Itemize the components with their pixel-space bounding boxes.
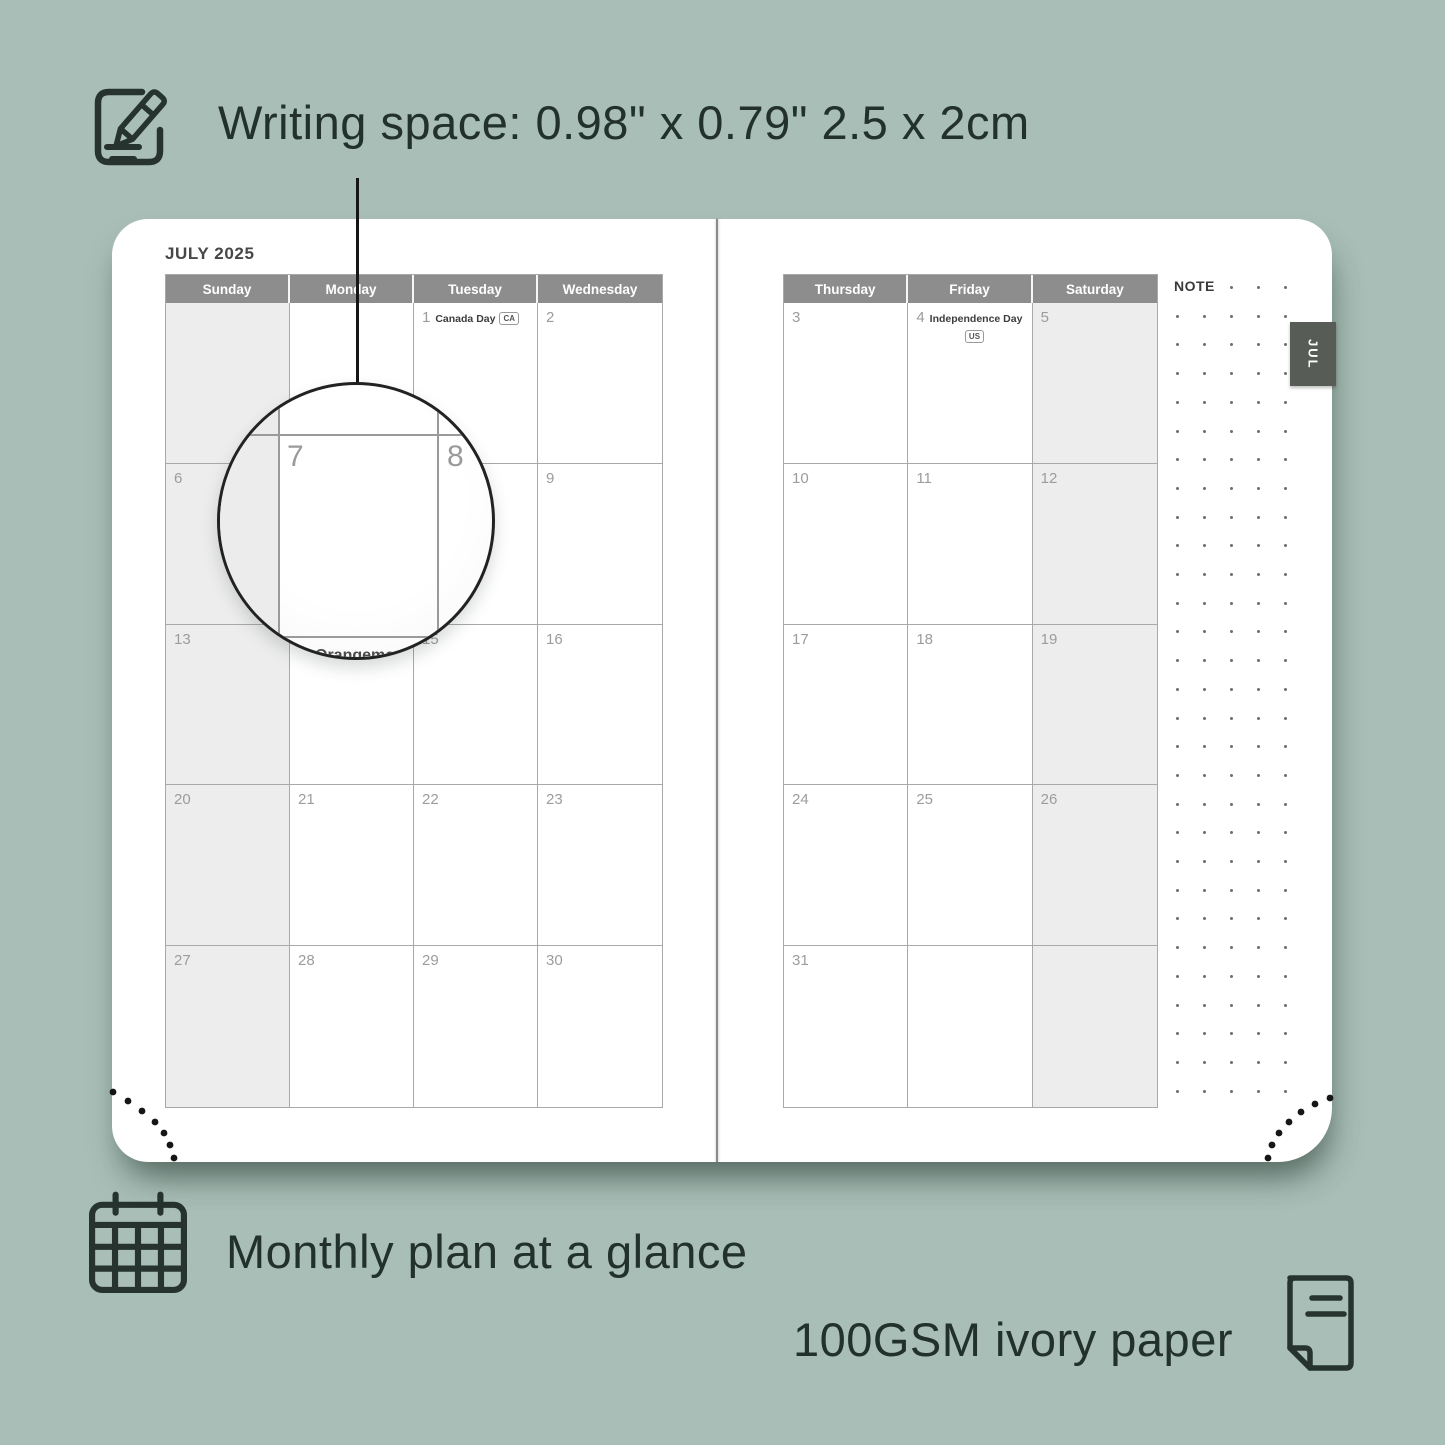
grid-dot: [1284, 803, 1287, 806]
date-number: 30: [546, 952, 563, 969]
grid-dot: [1203, 487, 1206, 490]
monthly-plan-caption: Monthly plan at a glance: [226, 1224, 748, 1279]
grid-dot: [1284, 889, 1287, 892]
grid-dot: [1284, 372, 1287, 375]
calendar-cell-24: 24: [784, 785, 908, 946]
calendar-cell-29: 29: [414, 946, 538, 1107]
grid-dot: [1176, 860, 1179, 863]
writing-space-caption: Writing space: 0.98" x 0.79" 2.5 x 2cm: [218, 95, 1030, 150]
grid-dot: [1284, 430, 1287, 433]
grid-dot: [1176, 401, 1179, 404]
grid-dot: [1176, 831, 1179, 834]
grid-dot: [1230, 315, 1233, 318]
calendar-cell-10: 10: [784, 464, 908, 625]
country-badge: CA: [499, 312, 519, 325]
grid-dot: [1257, 401, 1260, 404]
date-number: 6: [174, 470, 182, 487]
grid-dot: [1284, 860, 1287, 863]
grid-dot: [1257, 544, 1260, 547]
grid-dot: [1230, 372, 1233, 375]
grid-dot: [1257, 315, 1260, 318]
notebook-spine: [716, 219, 718, 1162]
grid-dot: [1284, 516, 1287, 519]
grid-dot: [1203, 917, 1206, 920]
calendar-cell-17: 17: [784, 625, 908, 786]
grid-dot: [1257, 372, 1260, 375]
date-number: 2: [546, 309, 554, 326]
grid-dot: [1257, 831, 1260, 834]
grid-dot: [1257, 286, 1260, 289]
date-number: 5: [1041, 309, 1049, 326]
calendar-cell-4: 4Independence DayUS: [908, 303, 1032, 464]
grid-dot: [1284, 286, 1287, 289]
grid-dot: [1176, 1004, 1179, 1007]
calendar-cell-23: 23: [538, 785, 662, 946]
paper-caption: 100GSM ivory paper: [793, 1312, 1233, 1367]
calendar-cell-empty: [1033, 946, 1157, 1107]
grid-dot: [1257, 630, 1260, 633]
grid-dot: [1284, 401, 1287, 404]
day-header-saturday: Saturday: [1033, 275, 1157, 303]
date-number: 13: [174, 631, 191, 648]
grid-dot: [1176, 315, 1179, 318]
grid-dot: [1284, 544, 1287, 547]
date-number: 11: [916, 470, 932, 487]
date-number: 21: [298, 791, 315, 808]
calendar-cell-2: 2: [538, 303, 662, 464]
grid-dot: [1284, 688, 1287, 691]
magnifier-circle: 7 8 Orangemen's: [217, 382, 495, 660]
grid-dot: [1230, 889, 1233, 892]
grid-dot: [1230, 516, 1233, 519]
magnified-gridline: [437, 385, 439, 657]
grid-dot: [1257, 688, 1260, 691]
grid-dot: [1176, 343, 1179, 346]
date-number: 17: [792, 631, 809, 648]
country-badge: US: [965, 330, 984, 343]
date-number: 16: [546, 631, 563, 648]
note-dot-grid: [1163, 276, 1333, 1108]
grid-dot: [1284, 659, 1287, 662]
magnified-gridline: [220, 636, 492, 638]
grid-dot: [1203, 860, 1206, 863]
grid-dot: [1230, 573, 1233, 576]
grid-dot: [1230, 831, 1233, 834]
date-number: 20: [174, 791, 191, 808]
grid-dot: [1284, 573, 1287, 576]
planner-product-image: { "colors": { "background": "#a8beb6", "…: [0, 0, 1445, 1445]
holiday-label: Independence Day: [930, 313, 1023, 325]
grid-dot: [1176, 1061, 1179, 1064]
grid-dot: [1203, 343, 1206, 346]
date-number: 27: [174, 952, 191, 969]
grid-dot: [1230, 659, 1233, 662]
calendar-cell-26: 26: [1033, 785, 1157, 946]
calendar-cell-28: 28: [290, 946, 414, 1107]
grid-dot: [1257, 1004, 1260, 1007]
calendar-cell-9: 9: [538, 464, 662, 625]
grid-dot: [1257, 717, 1260, 720]
calendar-cell-15: 15: [414, 625, 538, 786]
grid-dot: [1203, 430, 1206, 433]
grid-dot: [1284, 917, 1287, 920]
grid-dot: [1203, 401, 1206, 404]
grid-dot: [1203, 630, 1206, 633]
day-header-monday: Monday: [290, 275, 414, 303]
corner-stitch-dots-right: [1254, 1081, 1344, 1166]
calendar-cell-21: 21: [290, 785, 414, 946]
date-number: 31: [792, 952, 809, 969]
day-header-friday: Friday: [908, 275, 1032, 303]
planner-spread: JULY 2025 SundayMondayTuesdayWednesday1C…: [112, 219, 1332, 1162]
grid-dot: [1176, 659, 1179, 662]
magnified-gridline: [220, 434, 492, 436]
grid-dot: [1203, 717, 1206, 720]
grid-dot: [1230, 860, 1233, 863]
grid-dot: [1176, 803, 1179, 806]
grid-dot: [1203, 803, 1206, 806]
calendar-cell-empty: [908, 946, 1032, 1107]
magnified-day-7: 7: [287, 440, 304, 474]
grid-dot: [1257, 774, 1260, 777]
grid-dot: [1230, 975, 1233, 978]
day-header-thursday: Thursday: [784, 275, 908, 303]
badge-row: US: [916, 327, 1028, 345]
grid-dot: [1284, 487, 1287, 490]
grid-dot: [1176, 573, 1179, 576]
grid-dot: [1203, 1004, 1206, 1007]
corner-stitch-dots-left: [108, 1081, 198, 1166]
grid-dot: [1203, 1090, 1206, 1093]
grid-dot: [1257, 889, 1260, 892]
calendar-cell-3: 3: [784, 303, 908, 464]
grid-dot: [1176, 889, 1179, 892]
date-number: 10: [792, 470, 809, 487]
grid-dot: [1284, 717, 1287, 720]
grid-dot: [1257, 516, 1260, 519]
day-header-tuesday: Tuesday: [414, 275, 538, 303]
calendar-right-page: ThursdayFridaySaturday34Independence Day…: [783, 274, 1158, 1108]
month-title: JULY 2025: [165, 244, 255, 264]
grid-dot: [1284, 343, 1287, 346]
grid-dot: [1203, 1032, 1206, 1035]
grid-dot: [1176, 516, 1179, 519]
calendar-cell-11: 11: [908, 464, 1032, 625]
note-pencil-icon: [85, 75, 185, 180]
grid-dot: [1257, 659, 1260, 662]
grid-dot: [1284, 975, 1287, 978]
grid-dot: [1203, 975, 1206, 978]
grid-dot: [1257, 946, 1260, 949]
grid-dot: [1176, 975, 1179, 978]
grid-dot: [1230, 774, 1233, 777]
calendar-icon: [82, 1188, 194, 1300]
calendar-cell-16: 16: [538, 625, 662, 786]
date-number: 22: [422, 791, 439, 808]
grid-dot: [1203, 1061, 1206, 1064]
month-tab-jul: JUL: [1290, 322, 1336, 386]
grid-dot: [1257, 975, 1260, 978]
grid-dot: [1176, 946, 1179, 949]
date-number: 12: [1041, 470, 1058, 487]
grid-dot: [1176, 717, 1179, 720]
grid-dot: [1176, 458, 1179, 461]
grid-dot: [1284, 458, 1287, 461]
grid-dot: [1284, 946, 1287, 949]
grid-dot: [1284, 1061, 1287, 1064]
grid-dot: [1230, 946, 1233, 949]
grid-dot: [1203, 372, 1206, 375]
grid-dot: [1230, 1061, 1233, 1064]
grid-dot: [1176, 1090, 1179, 1093]
grid-dot: [1203, 659, 1206, 662]
grid-dot: [1257, 745, 1260, 748]
magnified-day-8: 8: [447, 440, 464, 474]
grid-dot: [1230, 688, 1233, 691]
grid-dot: [1257, 487, 1260, 490]
grid-dot: [1203, 315, 1206, 318]
grid-dot: [1176, 917, 1179, 920]
grid-dot: [1230, 458, 1233, 461]
grid-dot: [1257, 803, 1260, 806]
grid-dot: [1230, 602, 1233, 605]
calendar-cell-12: 12: [1033, 464, 1157, 625]
grid-dot: [1257, 1061, 1260, 1064]
calendar-cell-5: 5: [1033, 303, 1157, 464]
date-number: 25: [916, 791, 933, 808]
date-number: 29: [422, 952, 439, 969]
grid-dot: [1230, 1004, 1233, 1007]
grid-dot: [1257, 430, 1260, 433]
grid-dot: [1230, 1090, 1233, 1093]
grid-dot: [1257, 343, 1260, 346]
date-number: 26: [1041, 791, 1058, 808]
date-number: 18: [916, 631, 933, 648]
date-number: 9: [546, 470, 554, 487]
grid-dot: [1284, 774, 1287, 777]
grid-dot: [1176, 487, 1179, 490]
grid-dot: [1230, 544, 1233, 547]
grid-dot: [1257, 860, 1260, 863]
grid-dot: [1230, 401, 1233, 404]
date-number: 4: [916, 309, 924, 326]
grid-dot: [1203, 831, 1206, 834]
grid-dot: [1284, 1004, 1287, 1007]
grid-dot: [1176, 544, 1179, 547]
grid-dot: [1230, 803, 1233, 806]
grid-dot: [1203, 946, 1206, 949]
grid-dot: [1203, 745, 1206, 748]
grid-dot: [1257, 602, 1260, 605]
grid-dot: [1284, 831, 1287, 834]
grid-dot: [1230, 343, 1233, 346]
grid-dot: [1230, 917, 1233, 920]
grid-dot: [1230, 430, 1233, 433]
grid-dot: [1176, 745, 1179, 748]
grid-dot: [1284, 315, 1287, 318]
date-number: 19: [1041, 631, 1058, 648]
calendar-cell-31: 31: [784, 946, 908, 1107]
magnified-gridline: [278, 385, 280, 657]
grid-dot: [1230, 717, 1233, 720]
grid-dot: [1203, 544, 1206, 547]
grid-dot: [1284, 602, 1287, 605]
paper-sheet-icon: [1272, 1268, 1367, 1373]
magnified-sunday-shade: [220, 385, 279, 657]
grid-dot: [1284, 745, 1287, 748]
grid-dot: [1176, 372, 1179, 375]
grid-dot: [1176, 774, 1179, 777]
grid-dot: [1203, 889, 1206, 892]
grid-dot: [1203, 516, 1206, 519]
pointer-line: [356, 178, 359, 386]
grid-dot: [1203, 688, 1206, 691]
grid-dot: [1257, 917, 1260, 920]
date-number: 23: [546, 791, 563, 808]
calendar-cell-30: 30: [538, 946, 662, 1107]
day-header-wednesday: Wednesday: [538, 275, 662, 303]
grid-dot: [1230, 630, 1233, 633]
grid-dot: [1203, 602, 1206, 605]
grid-dot: [1257, 573, 1260, 576]
grid-dot: [1257, 1032, 1260, 1035]
grid-dot: [1176, 688, 1179, 691]
calendar-cell-19: 19: [1033, 625, 1157, 786]
date-number: 24: [792, 791, 809, 808]
date-number: 28: [298, 952, 315, 969]
grid-dot: [1230, 286, 1233, 289]
grid-dot: [1176, 602, 1179, 605]
grid-dot: [1203, 458, 1206, 461]
day-header-sunday: Sunday: [166, 275, 290, 303]
grid-dot: [1230, 1032, 1233, 1035]
grid-dot: [1230, 745, 1233, 748]
grid-dot: [1176, 630, 1179, 633]
date-number: 1: [422, 309, 430, 326]
calendar-cell-22: 22: [414, 785, 538, 946]
grid-dot: [1203, 774, 1206, 777]
calendar-cell-18: 18: [908, 625, 1032, 786]
calendar-cell-20: 20: [166, 785, 290, 946]
grid-dot: [1284, 1032, 1287, 1035]
month-tab-label: JUL: [1306, 339, 1321, 370]
grid-dot: [1203, 573, 1206, 576]
holiday-label: Canada Day: [435, 313, 495, 325]
grid-dot: [1284, 630, 1287, 633]
grid-dot: [1230, 487, 1233, 490]
calendar-cell-25: 25: [908, 785, 1032, 946]
date-number: 3: [792, 309, 800, 326]
grid-dot: [1176, 430, 1179, 433]
grid-dot: [1176, 1032, 1179, 1035]
grid-dot: [1257, 458, 1260, 461]
